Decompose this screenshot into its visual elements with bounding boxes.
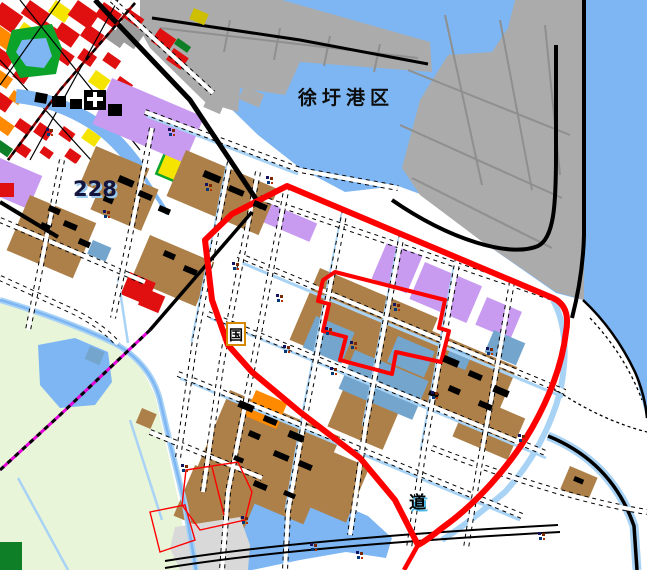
highway-228-label: 228 [73, 177, 117, 201]
port-area-label: 徐圩港区 [297, 86, 394, 109]
map-canvas[interactable]: 徐圩港区 228 228 道 道 国 [0, 0, 647, 570]
road-char-label: 道 [409, 492, 426, 513]
route-shield: 国 [227, 323, 245, 345]
route-shield-char: 国 [229, 328, 243, 344]
planning-map[interactable]: 徐圩港区 228 228 道 道 国 [0, 0, 647, 570]
